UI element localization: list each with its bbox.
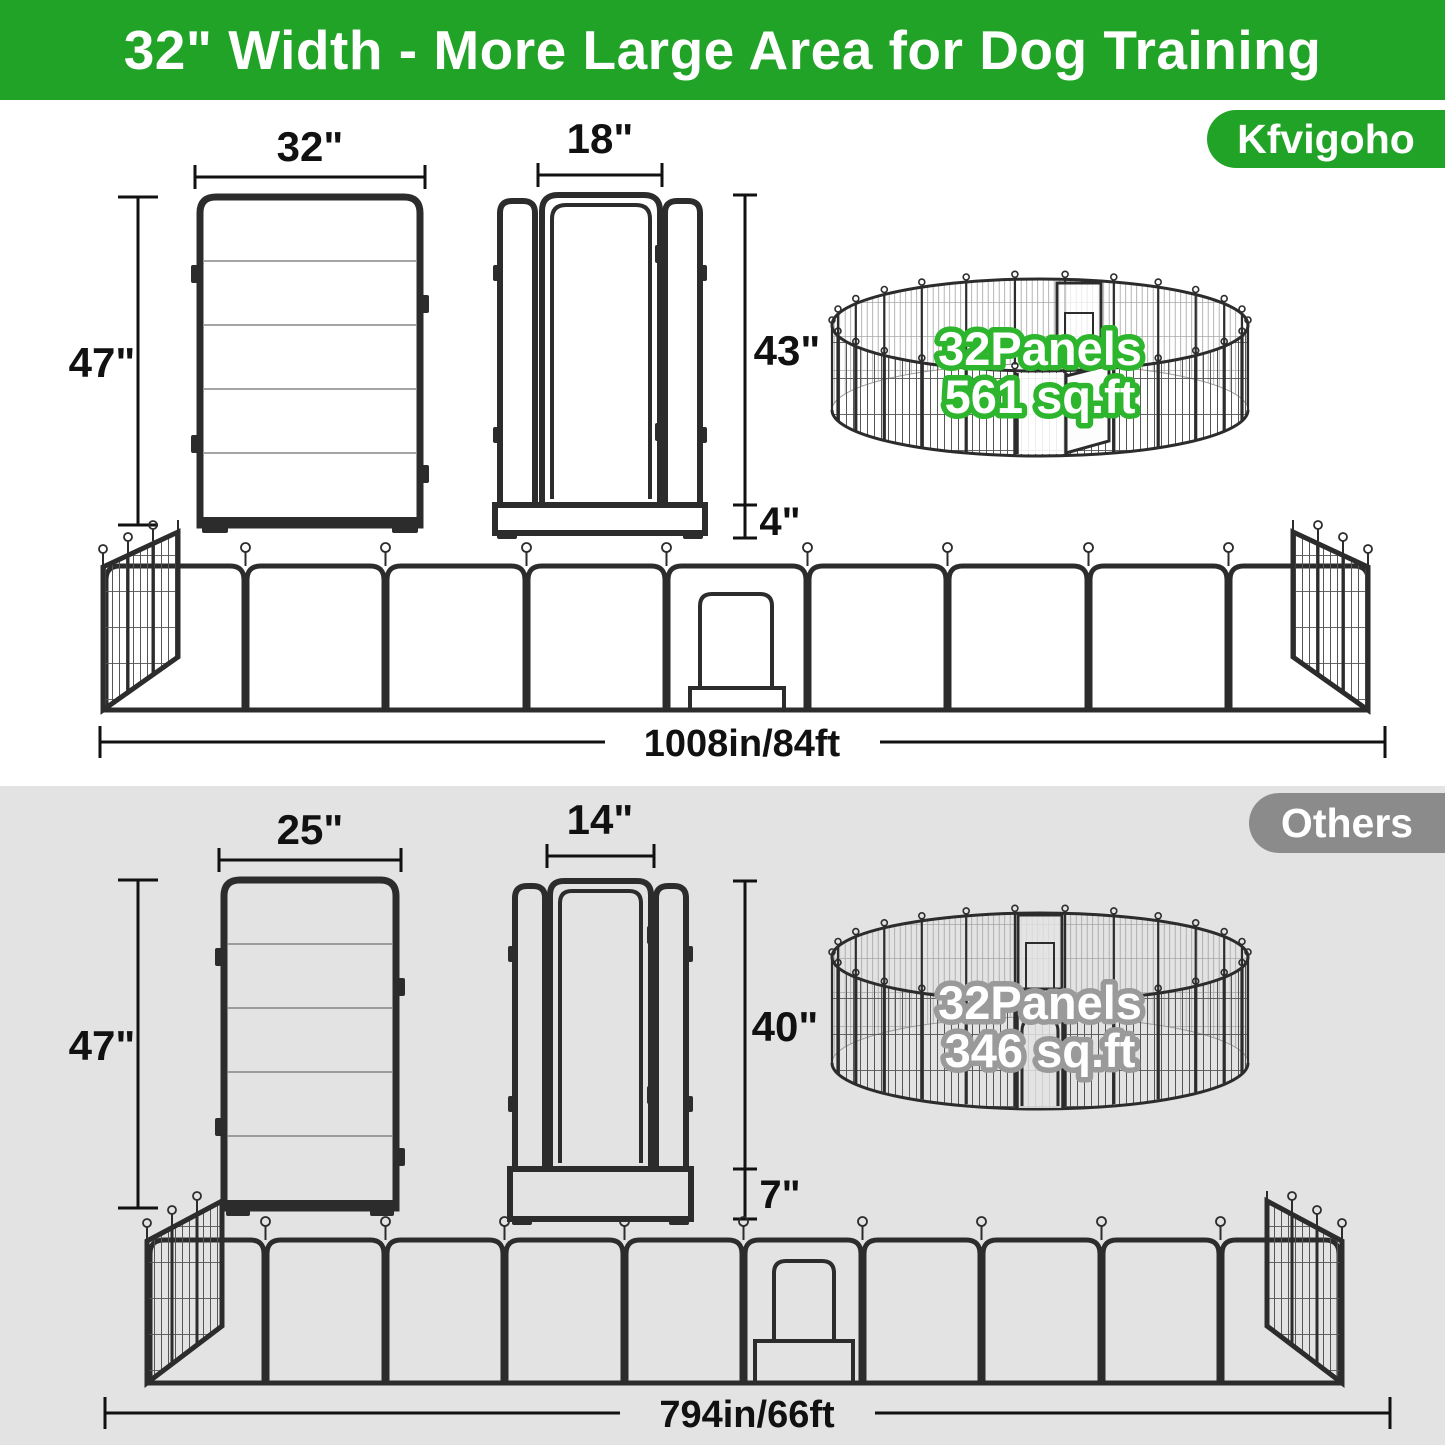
others-badge-label: Others [1281, 800, 1413, 847]
brand-row-diagram: 1008in/84ft [60, 520, 1400, 770]
brand-section: Kfvigoho 32" 47" 18" [0, 100, 1445, 786]
others-pen-panels-label: 32Panels [938, 976, 1142, 1029]
banner: 32" Width - More Large Area for Dog Trai… [0, 0, 1445, 100]
row-joint-pins [241, 543, 1233, 566]
others-row-diagram: 794in/66ft [60, 1191, 1400, 1441]
brand-panel-height-label: 47" [69, 339, 136, 386]
brand-door-height-label: 43" [754, 327, 821, 374]
brand-door-width-label: 18" [567, 115, 634, 162]
others-door-width-label: 14" [567, 796, 634, 843]
brand-pen-panels-label: 32Panels [938, 322, 1142, 375]
others-row-length-label: 794in/66ft [659, 1394, 835, 1436]
others-badge: Others [1249, 793, 1445, 853]
brand-pen-area-label: 561 sq.ft [945, 370, 1136, 423]
row-joint-pins [261, 1217, 1225, 1240]
brand-badge-label: Kfvigoho [1237, 116, 1415, 163]
brand-panel-width-label: 32" [277, 123, 344, 170]
others-panel-height-label: 47" [69, 1022, 136, 1069]
brand-panel-diagram: 32" 47" [60, 115, 460, 545]
others-pen-area-label: 346 sq.ft [945, 1024, 1136, 1077]
others-panel-width-label: 25" [277, 806, 344, 853]
others-door-height-label: 40" [752, 1003, 819, 1050]
banner-title: 32" Width - More Large Area for Dog Trai… [124, 18, 1322, 82]
brand-door-diagram: 18" 43" 4" [460, 105, 830, 545]
product-infographic: 32" Width - More Large Area for Dog Trai… [0, 0, 1445, 1445]
brand-badge: Kfvigoho [1207, 110, 1445, 168]
brand-pen-diagram: 32Panels 561 sq.ft [815, 235, 1265, 525]
others-pen-diagram: 32Panels 346 sq.ft [815, 891, 1265, 1181]
brand-row-length-label: 1008in/84ft [644, 723, 841, 765]
others-section: Others 25" 47" 14" [0, 786, 1445, 1445]
others-panel-diagram: 25" 47" [60, 798, 460, 1228]
others-door-diagram: 14" 40" 7" [460, 786, 830, 1226]
